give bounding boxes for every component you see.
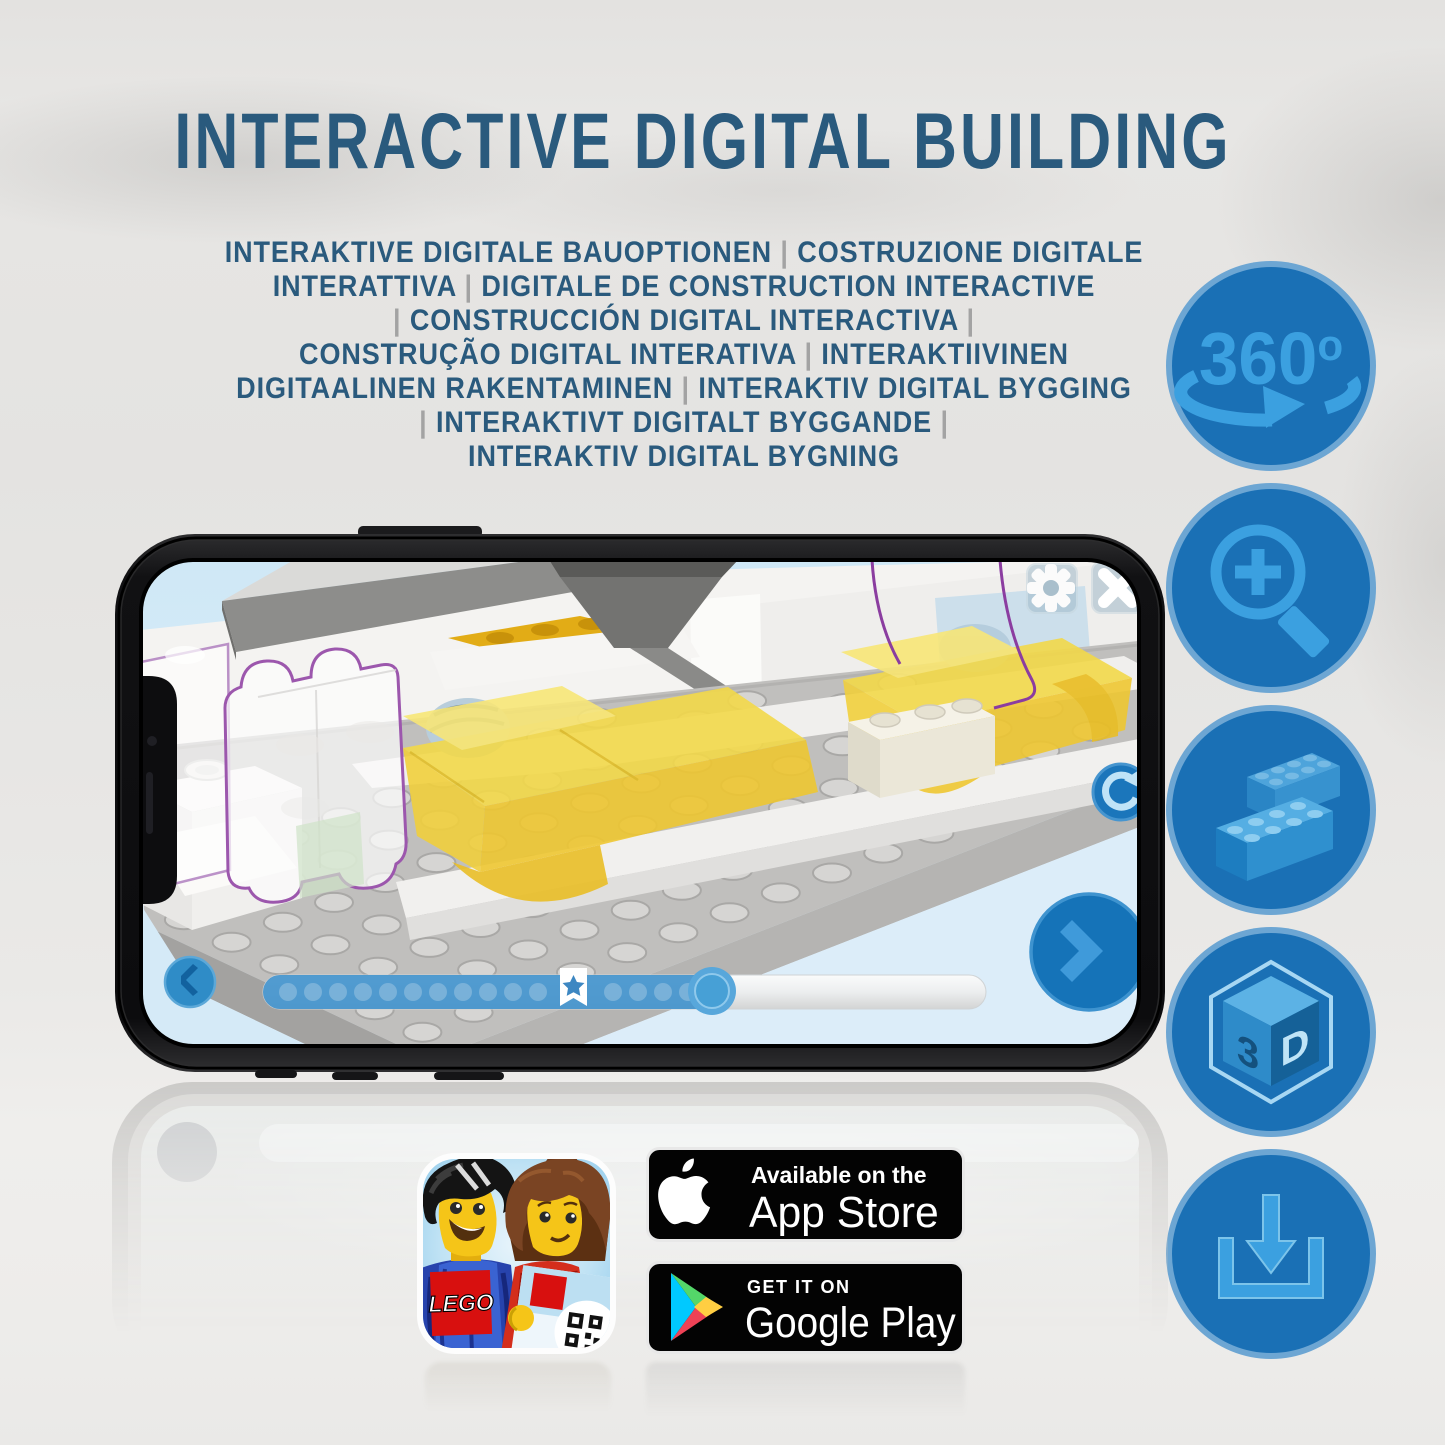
svg-text:App Store: App Store xyxy=(749,1188,939,1237)
svg-text:LEGO: LEGO xyxy=(428,1289,494,1317)
svg-text:GET IT ON: GET IT ON xyxy=(747,1277,851,1297)
svg-text:Available on the: Available on the xyxy=(751,1162,927,1188)
svg-text:Google Play: Google Play xyxy=(745,1298,956,1346)
